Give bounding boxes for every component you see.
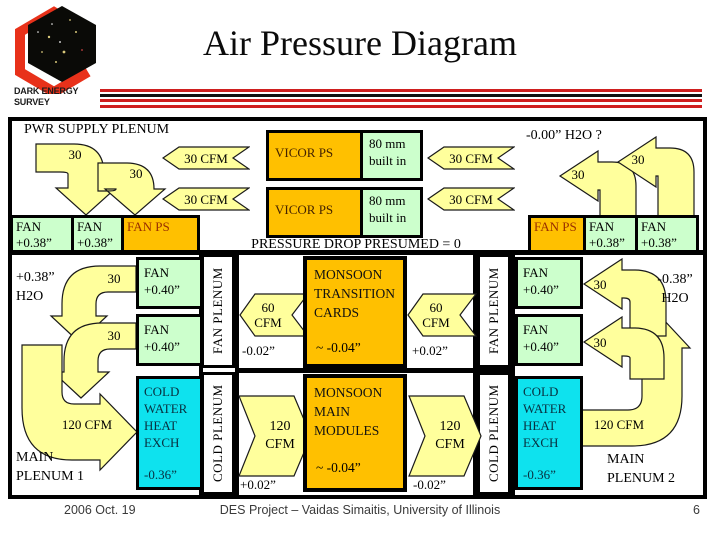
flow-label-a1: 30 [61,147,89,163]
fan-group-left: FAN+0.38” FAN+0.38” FAN PS [10,215,200,253]
cold-plenum-left: COLD PLENUM [201,372,235,495]
cfm-arrow-right-1: 30 CFM [427,146,515,170]
cfm120-arrow-left: 120CFM [238,394,312,478]
fan-left-1: FAN+0.38” [13,218,71,250]
slide: DARK ENERGY SURVEY Air Pressure Diagram … [0,0,720,540]
flow-label-b1: 30 [564,167,592,183]
fan40-right-2: FAN+0.40” [515,314,583,366]
footer-credit: DES Project – Vaidas Simaitis, Universit… [110,503,610,517]
fan-right-2: FAN+0.38” [638,218,696,250]
vicor-ps-1-note: 80 mmbuilt in [363,133,420,178]
vicor-ps-unit-2: VICOR PS 80 mmbuilt in [266,187,423,238]
cfm120-arrow-right: 120CFM [408,394,482,478]
slide-title: Air Pressure Diagram [0,22,720,64]
vicor-ps-2-note: 80 mmbuilt in [363,190,420,235]
pwr-supply-plenum-label: PWR SUPPLY PLENUM [24,121,169,138]
monsoon-main-pressure: ~ -0.04” [316,460,361,476]
pressure-value-bot-right: -0.02” [413,477,446,493]
cold-water-hx-right: COLDWATER HEATEXCH -0.36” [515,376,583,490]
flow120-right-label: 120 CFM [586,417,652,433]
fan-right-1: FAN+0.38” [586,218,635,250]
fan40-right-1: FAN+0.40” [515,257,583,309]
fan-ps-right: FAN PS [531,218,583,250]
vicor-ps-1-box: VICOR PS [269,133,360,178]
header-rule-black [100,94,702,97]
flow-label-f1: 30 [587,277,613,293]
logo-text-line2: SURVEY [14,97,50,107]
header-rule-red-1 [100,89,702,92]
fan-group-right: FAN PS FAN+0.38” FAN+0.38” [528,215,699,253]
flow-label-c1: 30 [100,271,128,287]
pressure-value-mid-left: -0.02” [242,343,275,359]
cold-plenum-right: COLD PLENUM [477,372,511,495]
flow-label-a2: 30 [122,166,150,182]
h2o-right-label: -0.38”H2O [651,270,699,308]
main-plenum-1-label: MAINPLENUM 1 [16,448,84,486]
cfm60-arrow-left: 60CFM [239,292,309,338]
hx-left-pressure: -0.36” [144,467,177,483]
fan-plenum-right: FAN PLENUM [477,254,511,368]
cfm-arrow-right-2: 30 CFM [427,187,515,211]
header-rule-red-3 [100,105,702,108]
logo-text-line1: DARK ENERGY [14,86,78,96]
pressure-drop-note: PRESSURE DROP PRESUMED = 0 [236,236,476,253]
fan40-left-2: FAN+0.40” [136,314,203,366]
flow120-left-label: 120 CFM [52,417,122,433]
footer-page-number: 6 [693,503,700,517]
cfm-arrow-left-2: 30 CFM [162,187,250,211]
fan-plenum-left: FAN PLENUM [201,254,235,368]
pressure-value-bot-left: +0.02” [240,477,276,493]
main-plenum-2-label: MAINPLENUM 2 [607,450,675,488]
flow-label-b2: 30 [624,152,652,168]
monsoon-transition-pressure: ~ -0.04” [316,340,361,356]
cfm-arrow-left-1: 30 CFM [162,146,250,170]
flow-label-f2: 30 [587,335,613,351]
cfm60-arrow-right: 60CFM [407,292,477,338]
flow-label-c2: 30 [100,328,128,344]
vicor-ps-unit-1: VICOR PS 80 mmbuilt in [266,130,423,181]
h2o-left-label: +0.38”H2O [16,268,55,306]
fan40-left-1: FAN+0.40” [136,257,203,309]
hx-right-pressure: -0.36” [523,467,556,483]
pressure-value-mid-right: +0.02” [412,343,448,359]
fan-left-2: FAN+0.38” [74,218,121,250]
cold-water-hx-left: COLDWATER HEATEXCH -0.36” [136,376,203,490]
vicor-ps-2-box: VICOR PS [269,190,360,235]
monsoon-transition-cards: MONSOON TRANSITION CARDS ~ -0.04” [303,256,407,368]
monsoon-main-modules: MONSOON MAIN MODULES ~ -0.04” [303,374,407,492]
header-rule-red-2 [100,99,702,102]
fan-ps-left: FAN PS [124,218,197,250]
h2o-zero-note: -0.00” H2O ? [526,127,602,144]
